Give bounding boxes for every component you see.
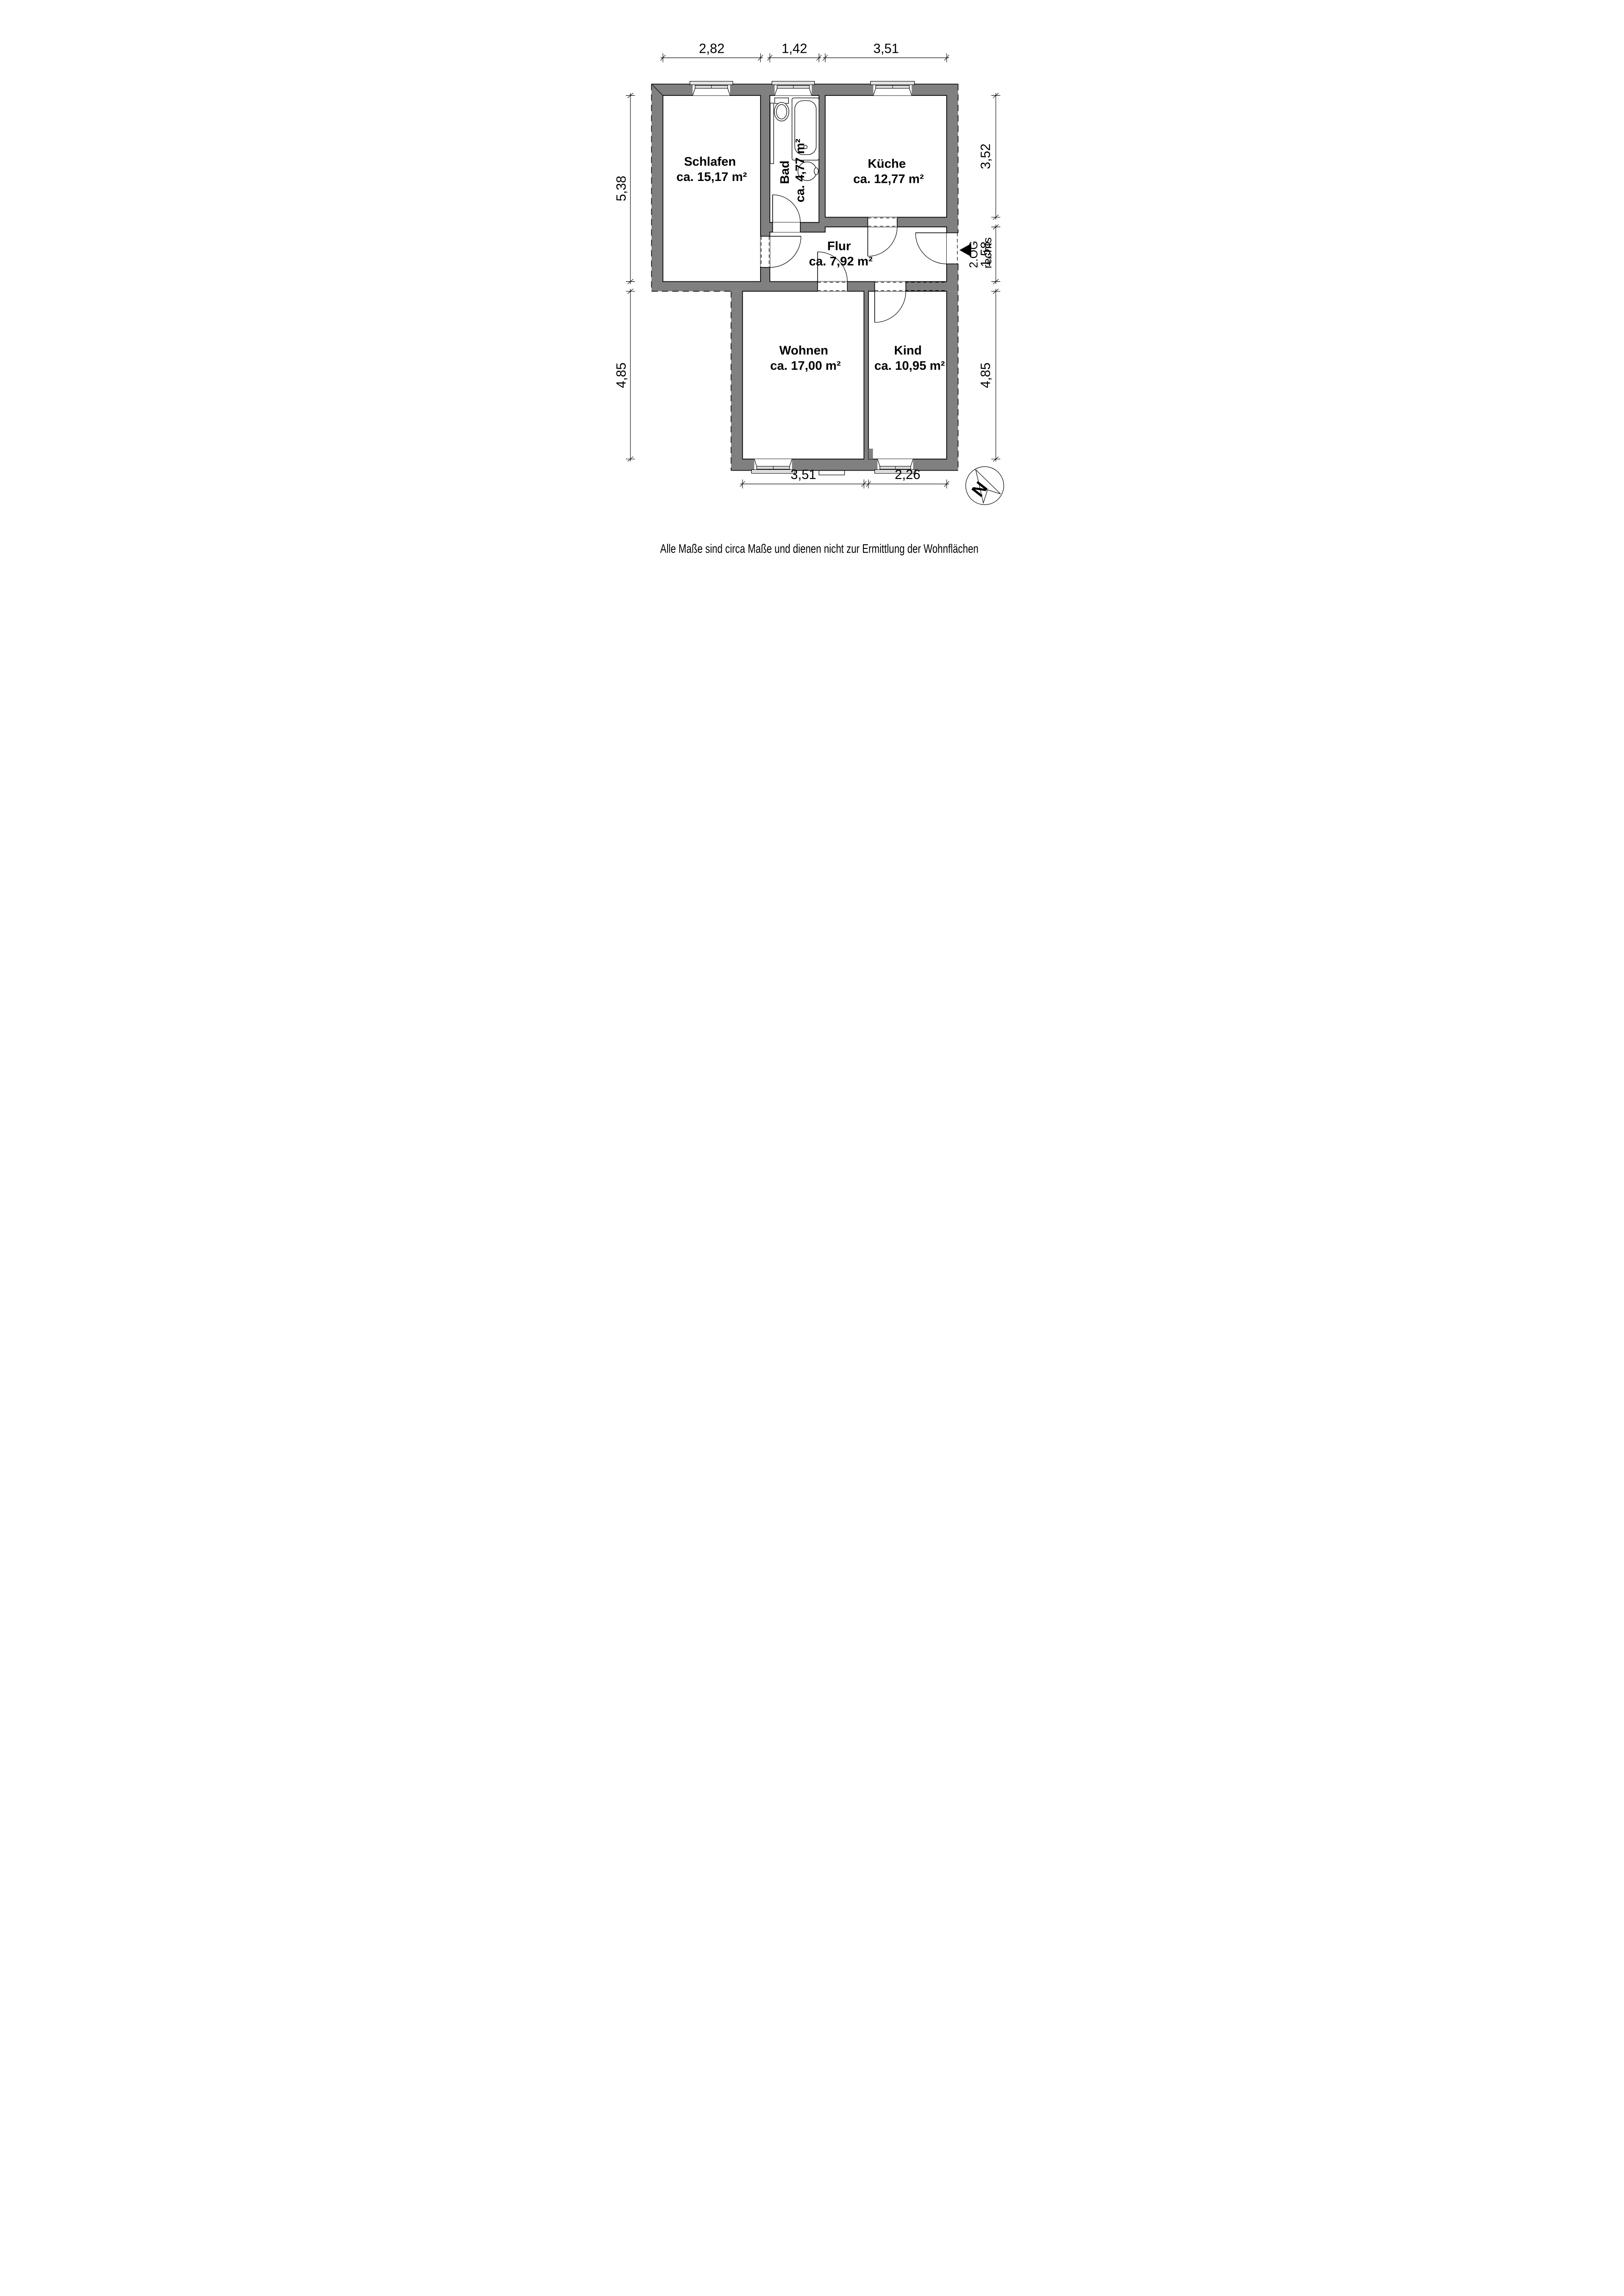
north-arrow: N xyxy=(965,467,1003,504)
dim-label-left-1: 4,85 xyxy=(614,362,629,388)
dim-label-top-2: 3,51 xyxy=(873,41,899,56)
room-kind xyxy=(868,291,946,459)
north-letter: N xyxy=(968,478,991,501)
dim-label-right-0: 3,52 xyxy=(978,143,993,169)
floorplan-drawing: 2,82 1,42 3,51 5,38 4,85 3,52 1,58 4,85 xyxy=(609,0,1015,574)
dim-label-bottom-0: 3,51 xyxy=(790,467,816,482)
label-schlafen: Schlafen ca. 15,17 m² xyxy=(676,155,747,184)
dim-label-top-1: 1,42 xyxy=(781,41,807,56)
dim-label-top-0: 2,82 xyxy=(699,41,724,56)
window-kueche xyxy=(870,81,914,96)
disclaimer-text: Alle Maße sind circa Maße und dienen nic… xyxy=(660,541,979,555)
dimension-left: 5,38 4,85 xyxy=(614,93,635,461)
window-wohnen xyxy=(751,459,794,473)
dim-label-right-2: 4,85 xyxy=(978,362,993,388)
window-bad xyxy=(772,81,814,96)
floorplan-sheet: 2,82 1,42 3,51 5,38 4,85 3,52 1,58 4,85 xyxy=(609,0,1015,574)
room-wohnen xyxy=(742,291,863,459)
entrance-label: 2.OG rechts xyxy=(968,237,994,268)
dim-label-bottom-1: 2,26 xyxy=(894,467,920,482)
wall-ledge-bottom xyxy=(819,471,844,475)
dimension-top: 2,82 1,42 3,51 xyxy=(660,41,949,62)
toilet xyxy=(774,98,788,121)
room-schlafen xyxy=(662,95,760,281)
wall-pier-kind xyxy=(868,448,873,459)
entrance-marker: 2.OG rechts xyxy=(959,237,994,268)
dim-label-left-0: 5,38 xyxy=(614,176,629,201)
dimension-right: 3,52 1,58 4,85 xyxy=(978,93,1000,461)
window-schlafen xyxy=(690,81,733,96)
radiator-bad xyxy=(770,103,773,164)
